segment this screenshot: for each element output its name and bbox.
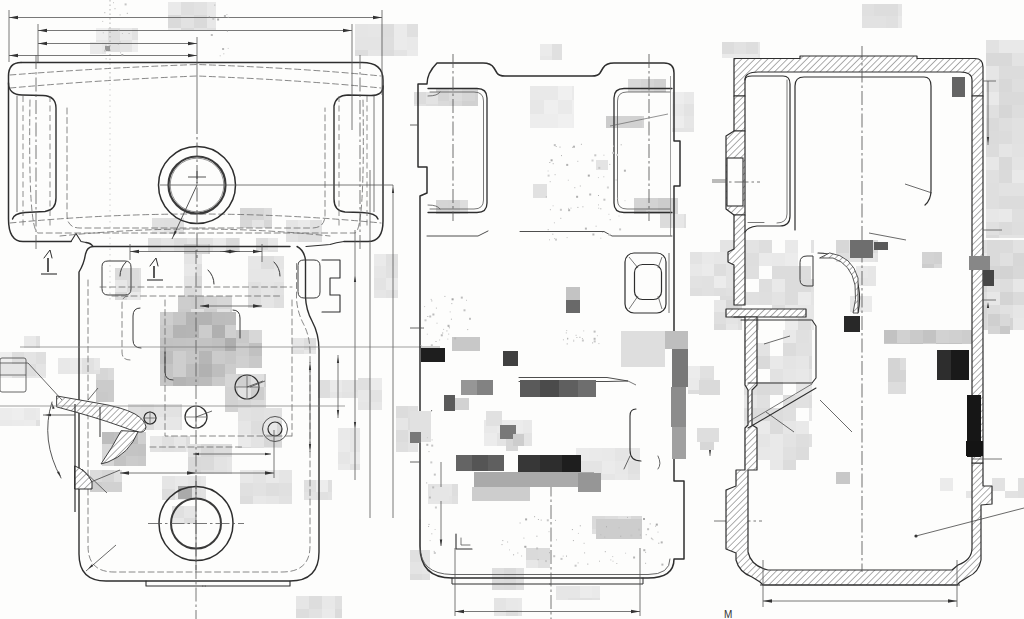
svg-text:M: M bbox=[724, 609, 732, 619]
